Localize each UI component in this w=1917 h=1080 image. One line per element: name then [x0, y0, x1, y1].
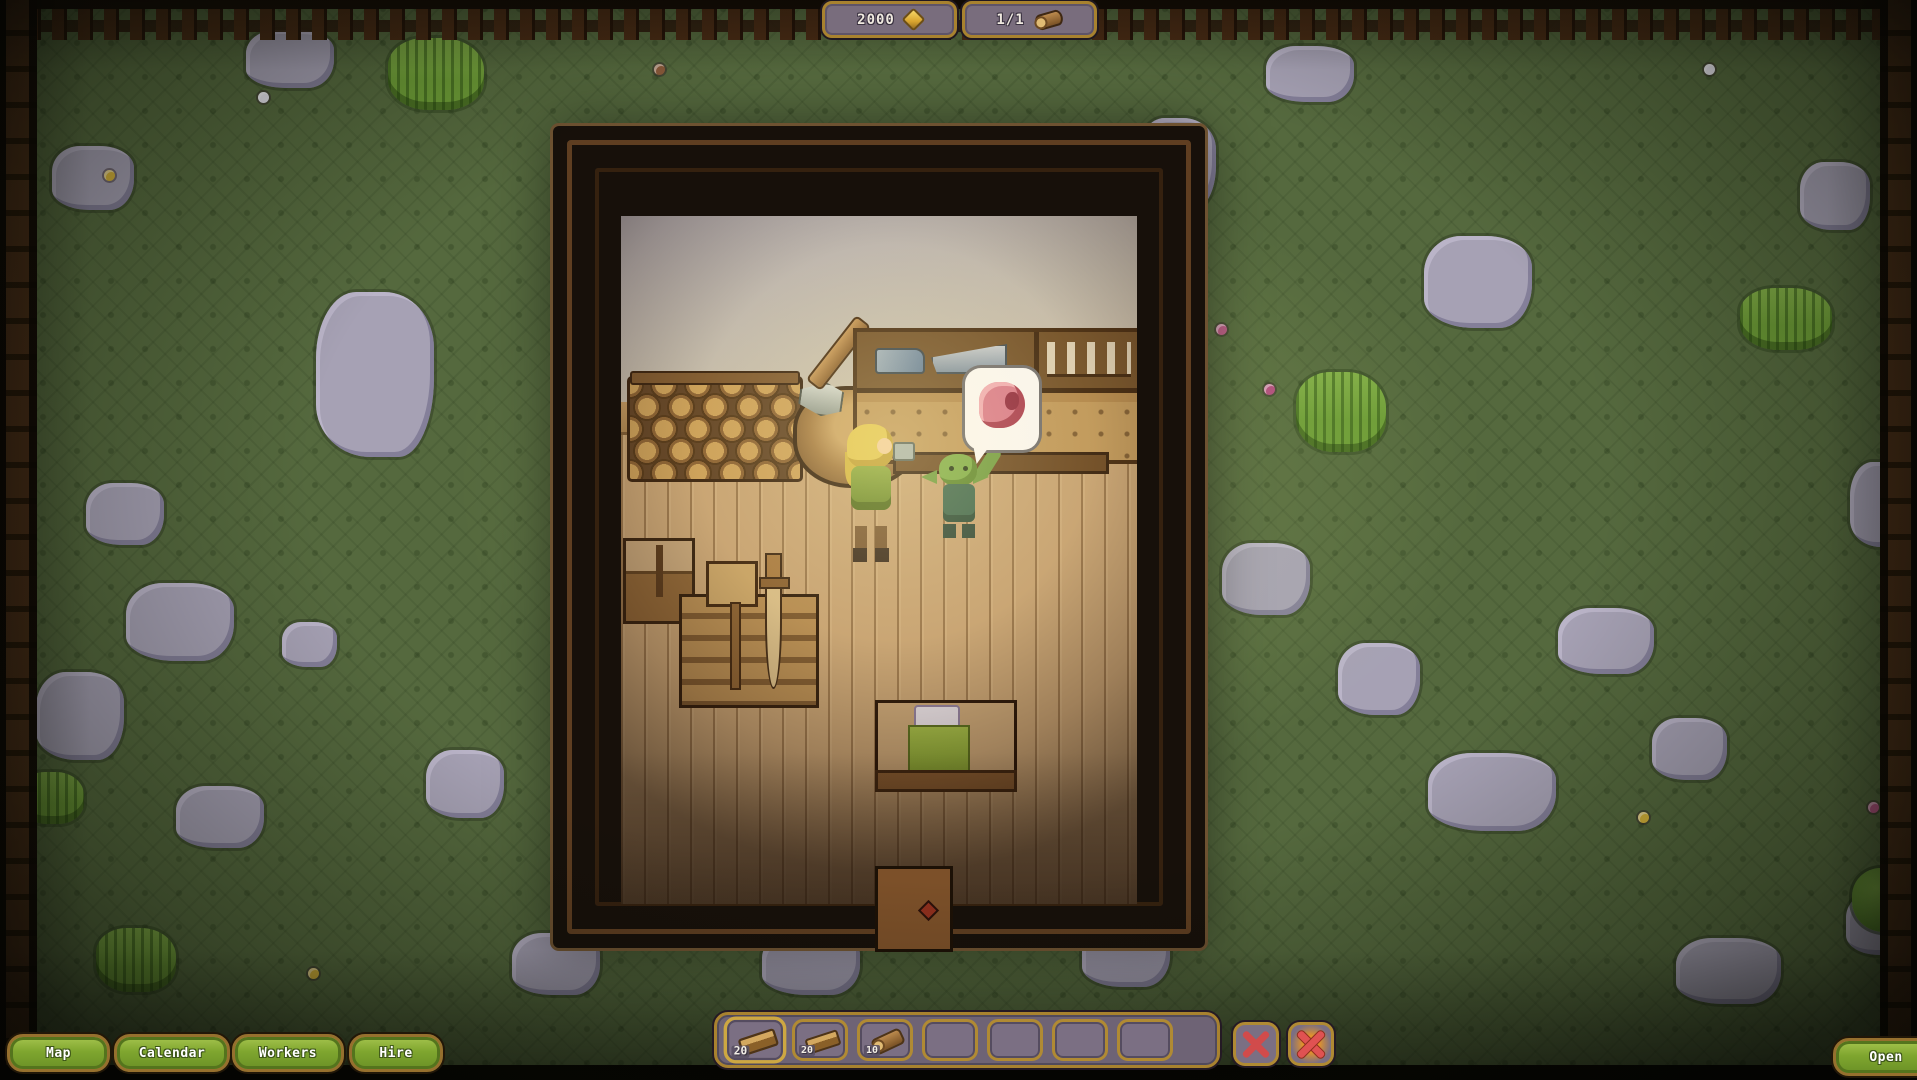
sign-panel	[706, 561, 758, 607]
hotbar-slot-4[interactable]	[922, 1019, 978, 1061]
fence-top	[0, 0, 1917, 40]
calendar-button[interactable]: Calendar	[114, 1034, 230, 1072]
goblin-body	[943, 484, 975, 522]
wooden-sword-icon	[765, 553, 782, 689]
map-button[interactable]: Map	[7, 1034, 110, 1072]
cancel-slot-button[interactable]	[1233, 1022, 1279, 1066]
stone-patch	[1222, 543, 1310, 615]
item-count: 10	[864, 1045, 880, 1056]
stone-patch	[52, 146, 134, 210]
flower	[654, 64, 665, 75]
stone-patch	[126, 583, 234, 661]
stone-patch	[316, 292, 434, 457]
stone-patch	[1800, 162, 1870, 230]
stone-patch	[426, 750, 504, 818]
villager-face	[877, 438, 892, 454]
wood-panel: 1/1	[962, 1, 1097, 38]
flower	[1264, 384, 1275, 395]
bed-board	[875, 770, 1017, 792]
carpenter-building	[553, 126, 1205, 948]
item-count: 20	[799, 1045, 815, 1056]
hotbar-slot-1[interactable]: 20	[724, 1016, 787, 1063]
open-button[interactable]: Open	[1833, 1038, 1917, 1076]
flower	[258, 92, 269, 103]
meat-icon	[979, 382, 1025, 428]
workbench	[679, 594, 819, 708]
hire-button[interactable]: Hire	[349, 1034, 443, 1072]
stone-patch	[1428, 753, 1556, 831]
bottles	[1047, 342, 1131, 377]
item-count: 20	[731, 1046, 749, 1058]
villager-body	[851, 466, 891, 510]
fence-right	[1880, 0, 1917, 1080]
stone-patch	[86, 483, 164, 545]
grass-tuft	[1296, 372, 1386, 452]
stone-patch	[1558, 608, 1654, 674]
hotbar: 202010	[714, 1012, 1220, 1068]
fence-left	[0, 0, 37, 1080]
flower	[1704, 64, 1715, 75]
flower	[104, 170, 115, 181]
workers-button[interactable]: Workers	[232, 1034, 344, 1072]
flower	[1868, 802, 1879, 813]
grass-tuft	[1740, 288, 1832, 350]
game-screen: 2000 1/1 Map Calendar Workers Hire 20201…	[0, 0, 1917, 1080]
bed	[875, 700, 1017, 792]
wood-value: 1/1	[996, 12, 1024, 28]
stone-patch	[176, 786, 264, 848]
speech-bubble	[965, 368, 1039, 450]
stone-patch	[1676, 938, 1781, 1004]
log-icon	[1033, 8, 1064, 31]
flower	[308, 968, 319, 979]
stone-patch	[36, 672, 124, 760]
hotbar-slot-7[interactable]	[1117, 1019, 1173, 1061]
tool-icon	[875, 348, 925, 374]
hotbar-slot-3[interactable]: 10	[857, 1019, 913, 1061]
goblin-character[interactable]	[917, 450, 997, 556]
stone-patch	[1266, 46, 1354, 102]
hotbar-slot-5[interactable]	[987, 1019, 1043, 1061]
mug-icon	[893, 442, 915, 461]
flower	[1638, 812, 1649, 823]
destroy-slot-button[interactable]	[1288, 1022, 1334, 1066]
building-door[interactable]	[875, 866, 953, 952]
money-value: 2000	[857, 12, 895, 28]
hotbar-slot-6[interactable]	[1052, 1019, 1108, 1061]
grass-tuft	[96, 928, 176, 992]
money-panel: 2000	[822, 1, 957, 38]
goblin-head	[939, 454, 977, 486]
stone-patch	[1652, 718, 1727, 780]
flower	[1216, 324, 1227, 335]
coin-icon	[901, 7, 925, 31]
villager-character[interactable]	[839, 424, 903, 562]
hotbar-slot-2[interactable]: 20	[792, 1019, 848, 1061]
building-interior	[621, 216, 1137, 904]
stone-patch	[1338, 643, 1420, 715]
stone-patch	[1424, 236, 1532, 328]
log-pile	[627, 376, 803, 482]
grass-tuft	[388, 38, 484, 110]
stone-patch	[282, 622, 337, 667]
